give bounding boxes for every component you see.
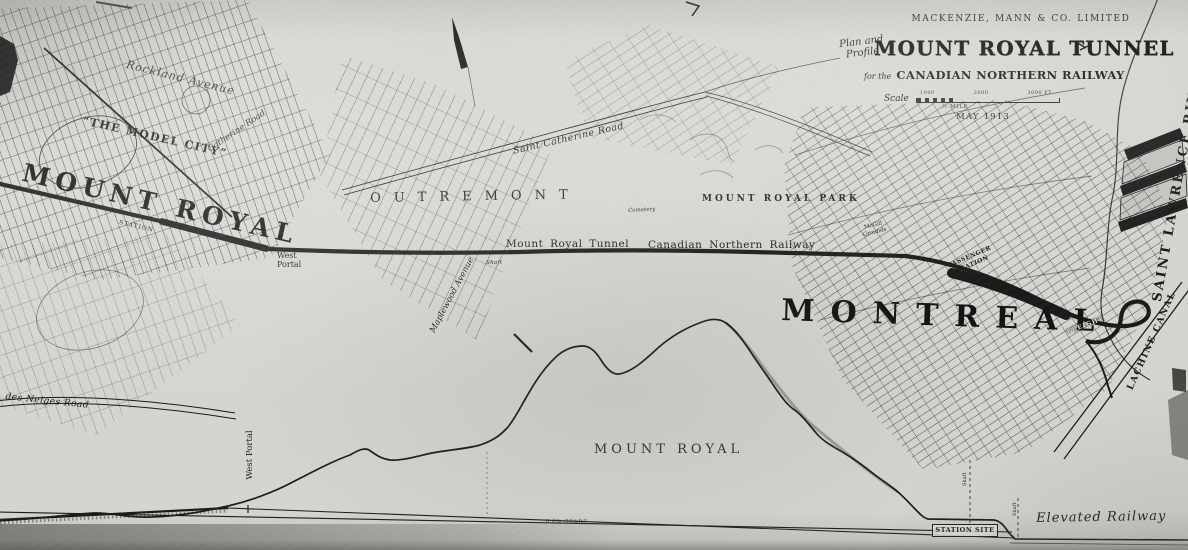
scale-half-mile: ½ MILE	[942, 104, 968, 110]
profile-west-portal-label: West Portal	[245, 419, 255, 491]
elevated-railway-line	[1014, 539, 1188, 540]
map-title: MOUNT ROYAL TUNNEL	[874, 36, 1114, 60]
canal-basin-block	[1172, 368, 1186, 392]
profile-baseline	[0, 508, 228, 520]
railway-name: CANADIAN NORTHERN RAILWAY	[896, 68, 1124, 82]
profile-mountain-label: MOUNT ROYAL	[594, 442, 743, 457]
scale-tick: 3000 FT	[1027, 90, 1052, 96]
tunnel-name-label: Mount Royal Tunnel	[506, 238, 629, 250]
scanned-map-image: MACKENZIE, MANN & CO. LIMITED Plan and P…	[0, 0, 1188, 550]
elevated-railway-label: Elevated Railway	[1036, 509, 1166, 526]
north-arrow-icon	[452, 17, 468, 69]
profile-slope-shading	[726, 323, 898, 492]
shaft-label: Shaft	[486, 260, 502, 266]
railway-name-label: Canadian Northern Railway	[648, 239, 815, 251]
scale-rule	[916, 98, 1060, 103]
scale-label: Scale	[884, 94, 909, 104]
map-date: MAY 1913	[928, 112, 1038, 122]
mount-royal-park-label: MOUNT ROYAL PARK	[702, 194, 860, 204]
saint-catherine-road-line	[342, 92, 705, 190]
profile-shaft-right-label: Shaft	[1012, 503, 1018, 517]
park-contours	[690, 134, 735, 162]
station-site-box: STATION SITE	[932, 524, 998, 537]
profile-shaft-left-label: Shaft	[962, 473, 968, 487]
scale-tick-labels: 1000 2000 3000 FT	[920, 90, 1052, 96]
company-name: MACKENZIE, MANN & CO. LIMITED	[876, 14, 1166, 24]
freight-spur	[1086, 341, 1112, 398]
edge-ink-blot	[0, 36, 18, 96]
scale-tick: 2000	[974, 90, 989, 96]
railway-subtitle: for the CANADIAN NORTHERN RAILWAY	[864, 64, 1116, 83]
grade-annotation: 0.6% GRADE	[546, 519, 588, 526]
mountain-profile	[0, 320, 1015, 540]
for-the-text: for the	[864, 72, 891, 81]
west-portal-map-label: West Portal	[277, 251, 311, 269]
model-city-crescent-2	[26, 256, 155, 364]
scale-tick: 1000	[920, 90, 935, 96]
